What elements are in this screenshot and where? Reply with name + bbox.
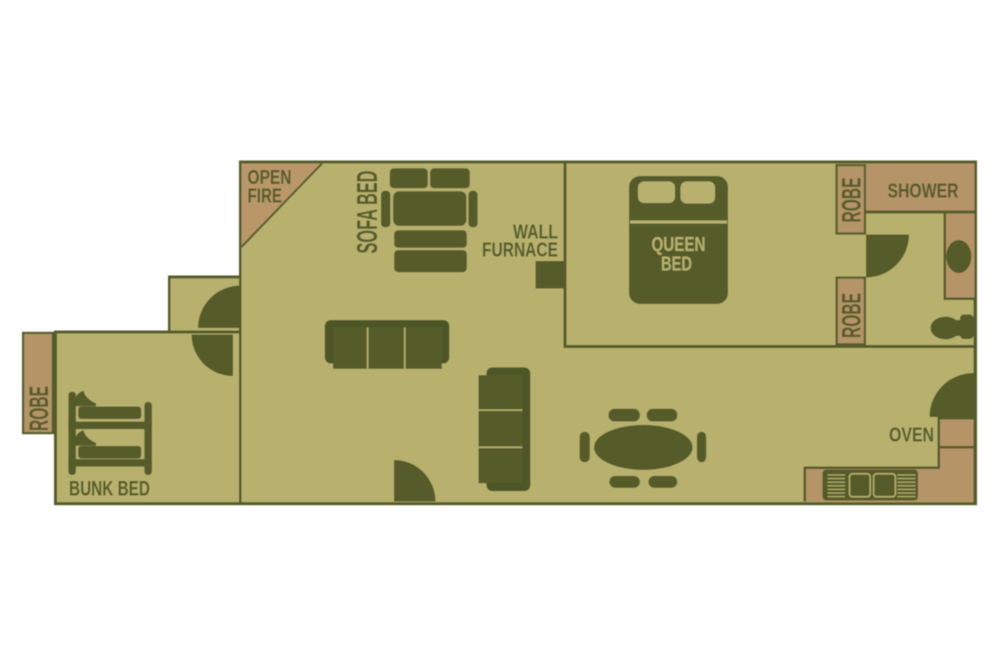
svg-text:SHOWER: SHOWER — [888, 181, 959, 203]
svg-text:ROBE: ROBE — [837, 293, 867, 338]
svg-text:ROBE: ROBE — [837, 178, 867, 223]
svg-text:BED: BED — [661, 254, 692, 276]
svg-text:FURNACE: FURNACE — [482, 240, 558, 262]
svg-text:FIRE: FIRE — [248, 186, 283, 208]
svg-text:BUNK BED: BUNK BED — [69, 478, 150, 501]
svg-text:SOFA BED: SOFA BED — [352, 171, 384, 254]
svg-text:ROBE: ROBE — [24, 386, 54, 431]
svg-text:OVEN: OVEN — [889, 425, 934, 447]
